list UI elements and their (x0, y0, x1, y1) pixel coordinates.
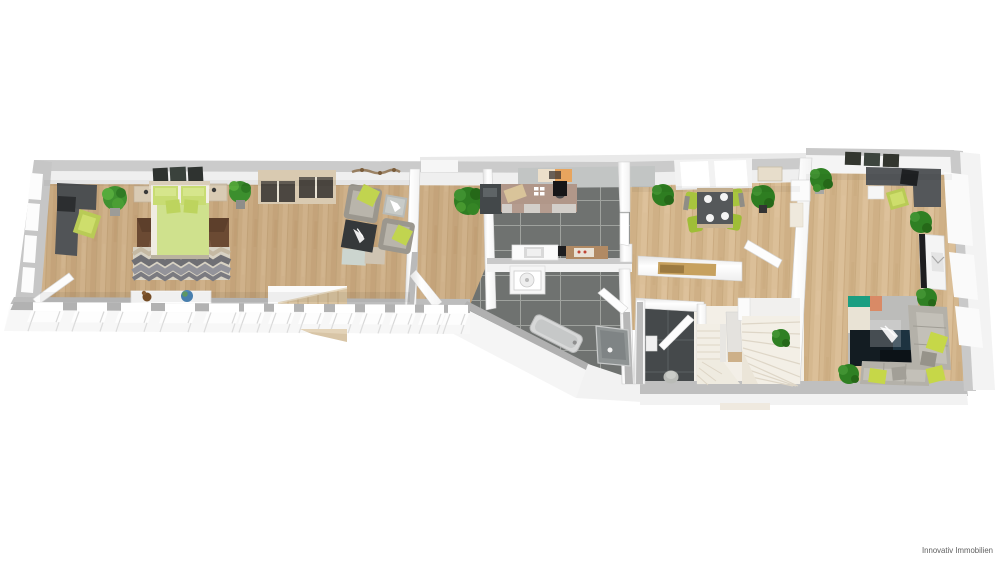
svg-text:Innovativ Immobilien: Innovativ Immobilien (922, 545, 993, 555)
